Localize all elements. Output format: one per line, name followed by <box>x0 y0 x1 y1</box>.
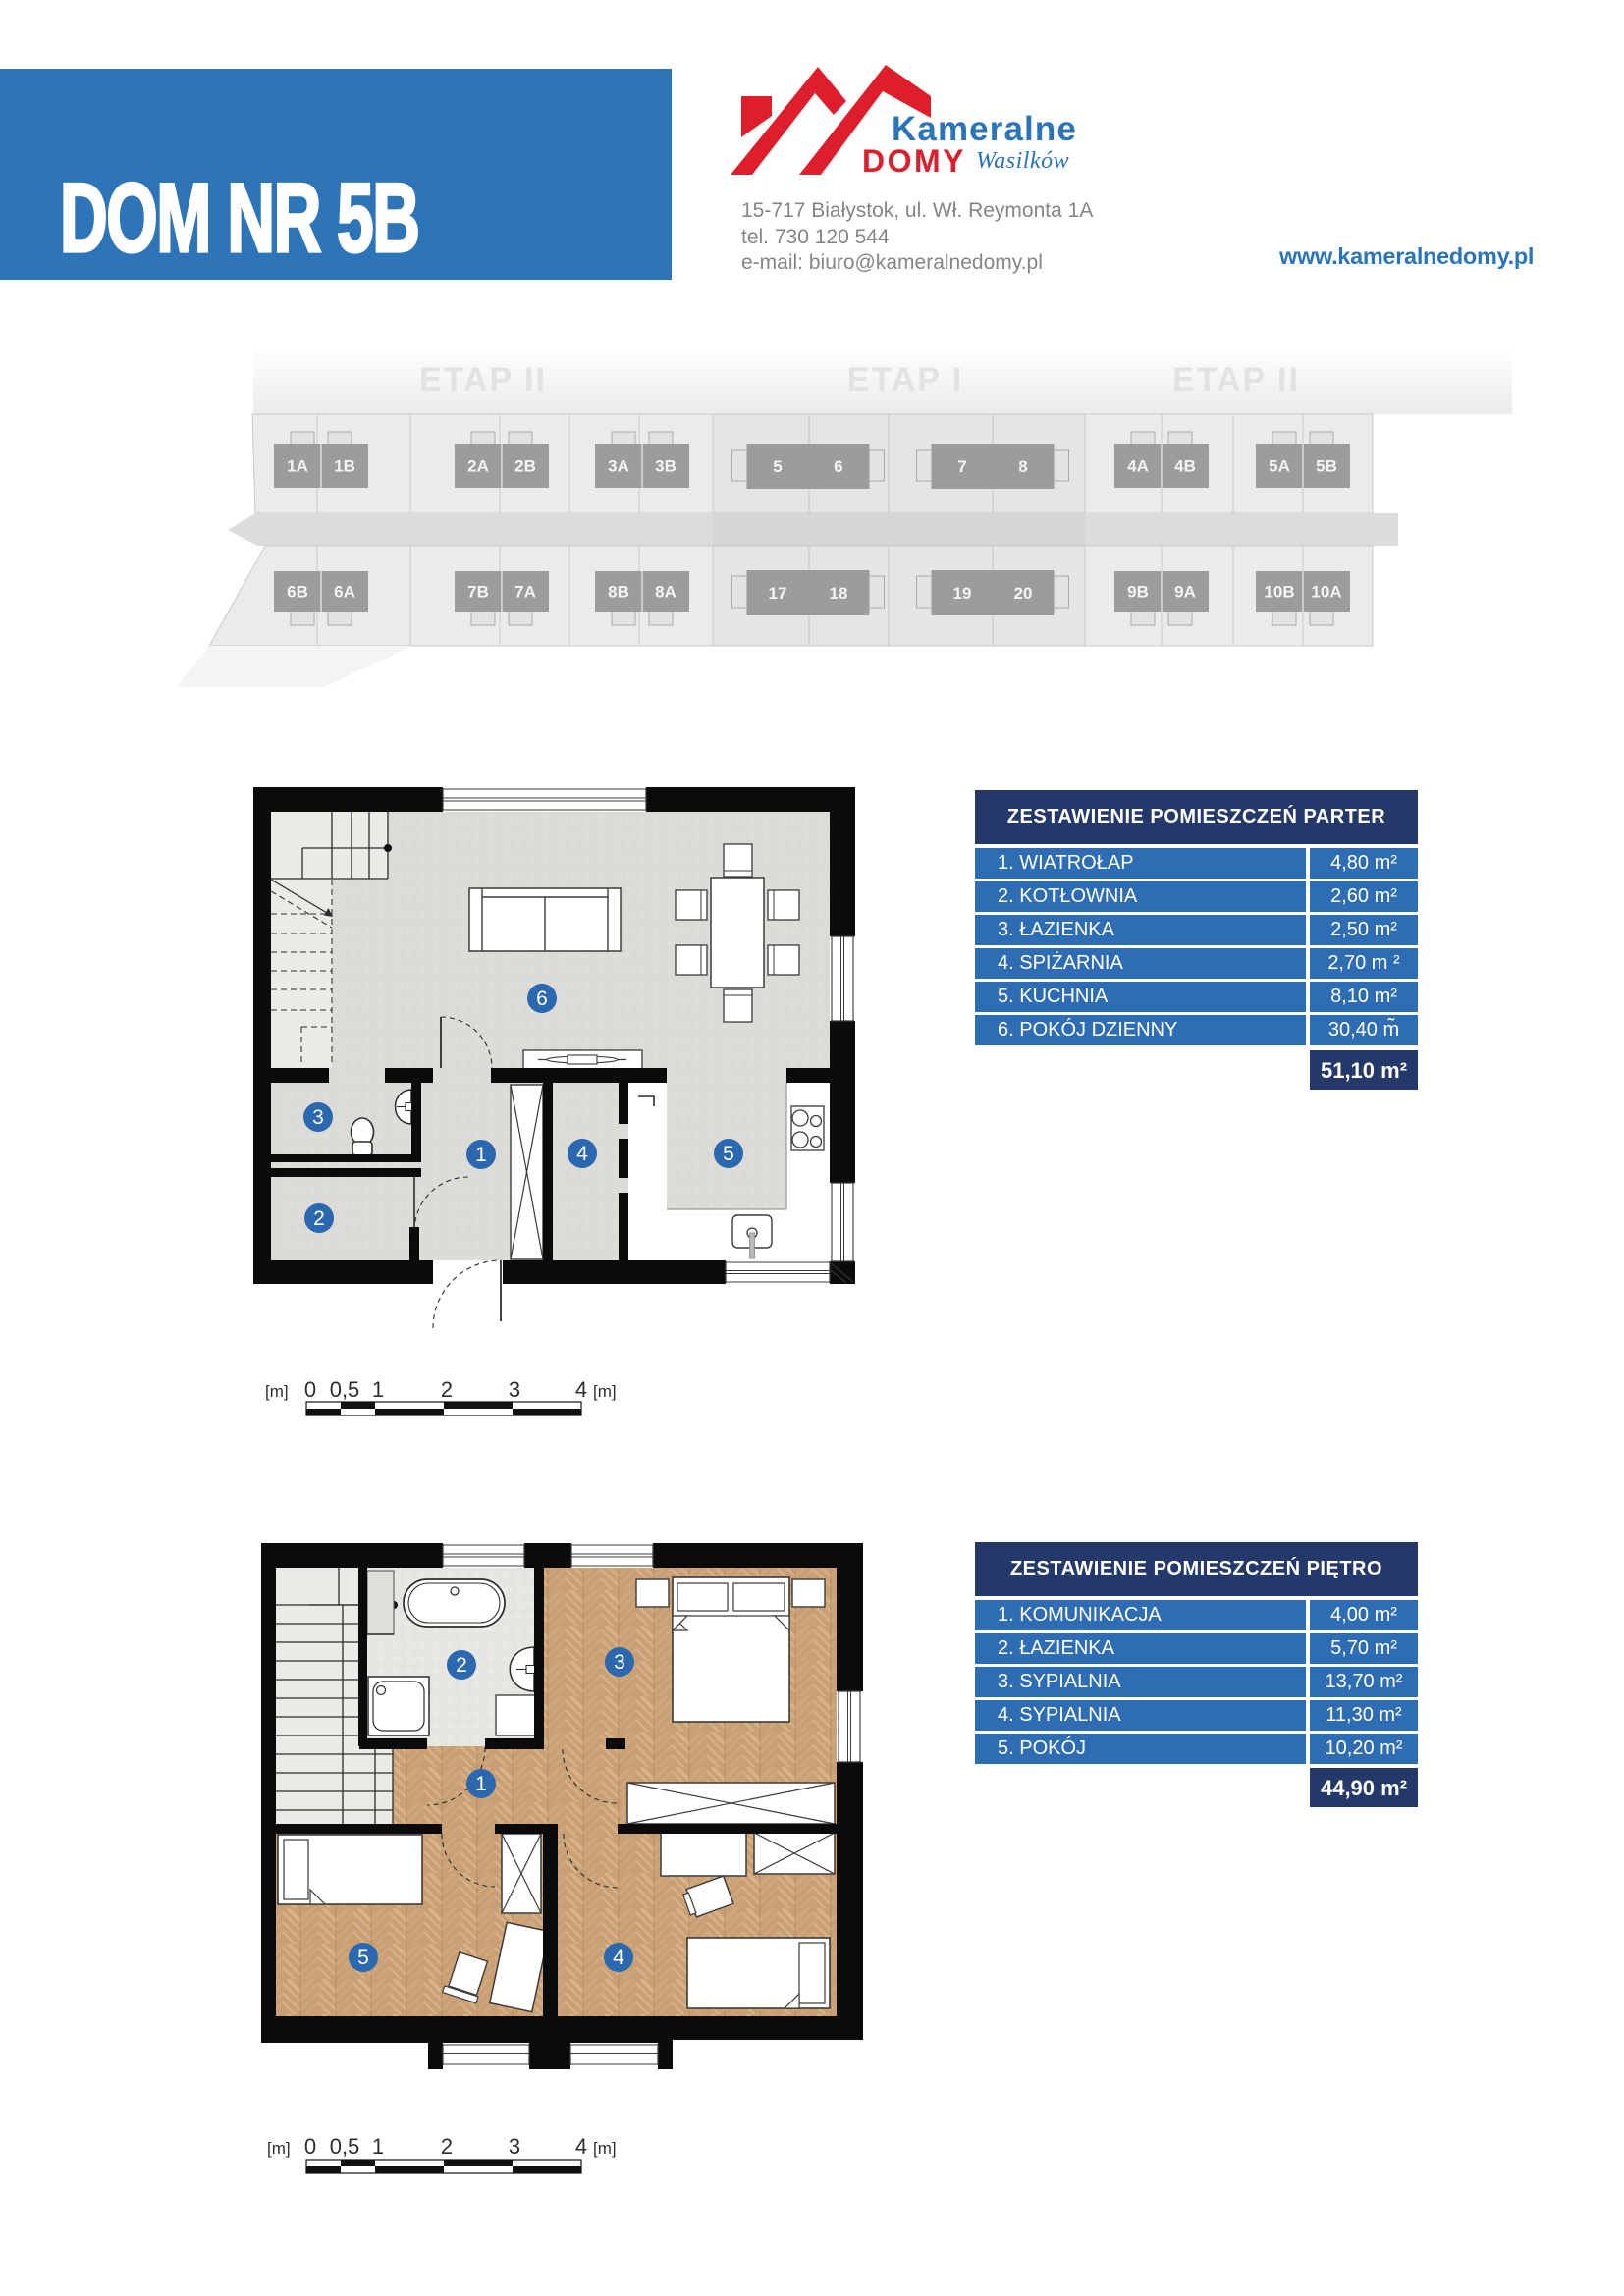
svg-text:1A: 1A <box>287 457 308 476</box>
svg-text:9B: 9B <box>1127 583 1149 602</box>
svg-text:ETAP II: ETAP II <box>1172 361 1300 399</box>
svg-text:3: 3 <box>509 1377 520 1402</box>
svg-text:[m]: [m] <box>267 2139 291 2158</box>
svg-text:4: 4 <box>613 1947 624 1969</box>
svg-text:3A: 3A <box>608 457 629 476</box>
svg-text:5A: 5A <box>1269 457 1290 476</box>
svg-text:19: 19 <box>953 584 972 603</box>
svg-text:0,5: 0,5 <box>330 1377 360 1402</box>
svg-text:2: 2 <box>456 1654 467 1677</box>
svg-text:4B: 4B <box>1174 457 1196 476</box>
svg-text:3: 3 <box>312 1106 324 1129</box>
svg-text:4A: 4A <box>1127 457 1149 476</box>
svg-text:6A: 6A <box>334 583 355 602</box>
svg-text:3: 3 <box>509 2134 520 2159</box>
svg-text:3B: 3B <box>655 457 677 476</box>
svg-text:9A: 9A <box>1174 583 1196 602</box>
svg-text:4: 4 <box>576 1143 588 1165</box>
svg-text:1: 1 <box>372 2134 384 2159</box>
svg-text:ETAP I: ETAP I <box>847 361 963 399</box>
svg-text:5: 5 <box>357 1947 369 1969</box>
svg-text:10A: 10A <box>1311 583 1341 602</box>
svg-text:1: 1 <box>372 1377 384 1402</box>
svg-text:4: 4 <box>575 2134 587 2159</box>
svg-text:7A: 7A <box>514 583 536 602</box>
svg-text:[m]: [m] <box>265 1382 289 1401</box>
svg-text:10B: 10B <box>1264 583 1294 602</box>
svg-text:0: 0 <box>304 1377 316 1402</box>
svg-text:6: 6 <box>834 457 842 476</box>
svg-text:17: 17 <box>769 584 787 603</box>
svg-text:1: 1 <box>475 1144 487 1166</box>
svg-text:[m]: [m] <box>593 2139 617 2158</box>
svg-text:20: 20 <box>1014 584 1033 603</box>
svg-text:6: 6 <box>536 988 548 1010</box>
svg-text:4: 4 <box>575 1377 587 1402</box>
svg-text:2A: 2A <box>467 457 489 476</box>
svg-text:2: 2 <box>313 1207 325 1230</box>
svg-text:0,5: 0,5 <box>330 2134 360 2159</box>
svg-text:1B: 1B <box>334 457 355 476</box>
svg-text:ETAP II: ETAP II <box>419 361 547 399</box>
svg-text:2B: 2B <box>514 457 536 476</box>
svg-text:18: 18 <box>830 584 848 603</box>
svg-text:2: 2 <box>441 2134 453 2159</box>
svg-text:1: 1 <box>475 1773 487 1795</box>
svg-text:8B: 8B <box>608 583 629 602</box>
svg-text:7: 7 <box>957 457 966 476</box>
svg-text:5: 5 <box>723 1143 734 1165</box>
svg-text:7B: 7B <box>467 583 489 602</box>
svg-text:8A: 8A <box>655 583 677 602</box>
svg-text:3: 3 <box>614 1651 625 1674</box>
svg-text:[m]: [m] <box>593 1382 617 1401</box>
svg-text:5B: 5B <box>1316 457 1337 476</box>
svg-text:5: 5 <box>773 457 782 476</box>
svg-text:6B: 6B <box>287 583 308 602</box>
svg-text:0: 0 <box>304 2134 316 2159</box>
svg-text:2: 2 <box>441 1377 453 1402</box>
svg-text:8: 8 <box>1018 457 1027 476</box>
